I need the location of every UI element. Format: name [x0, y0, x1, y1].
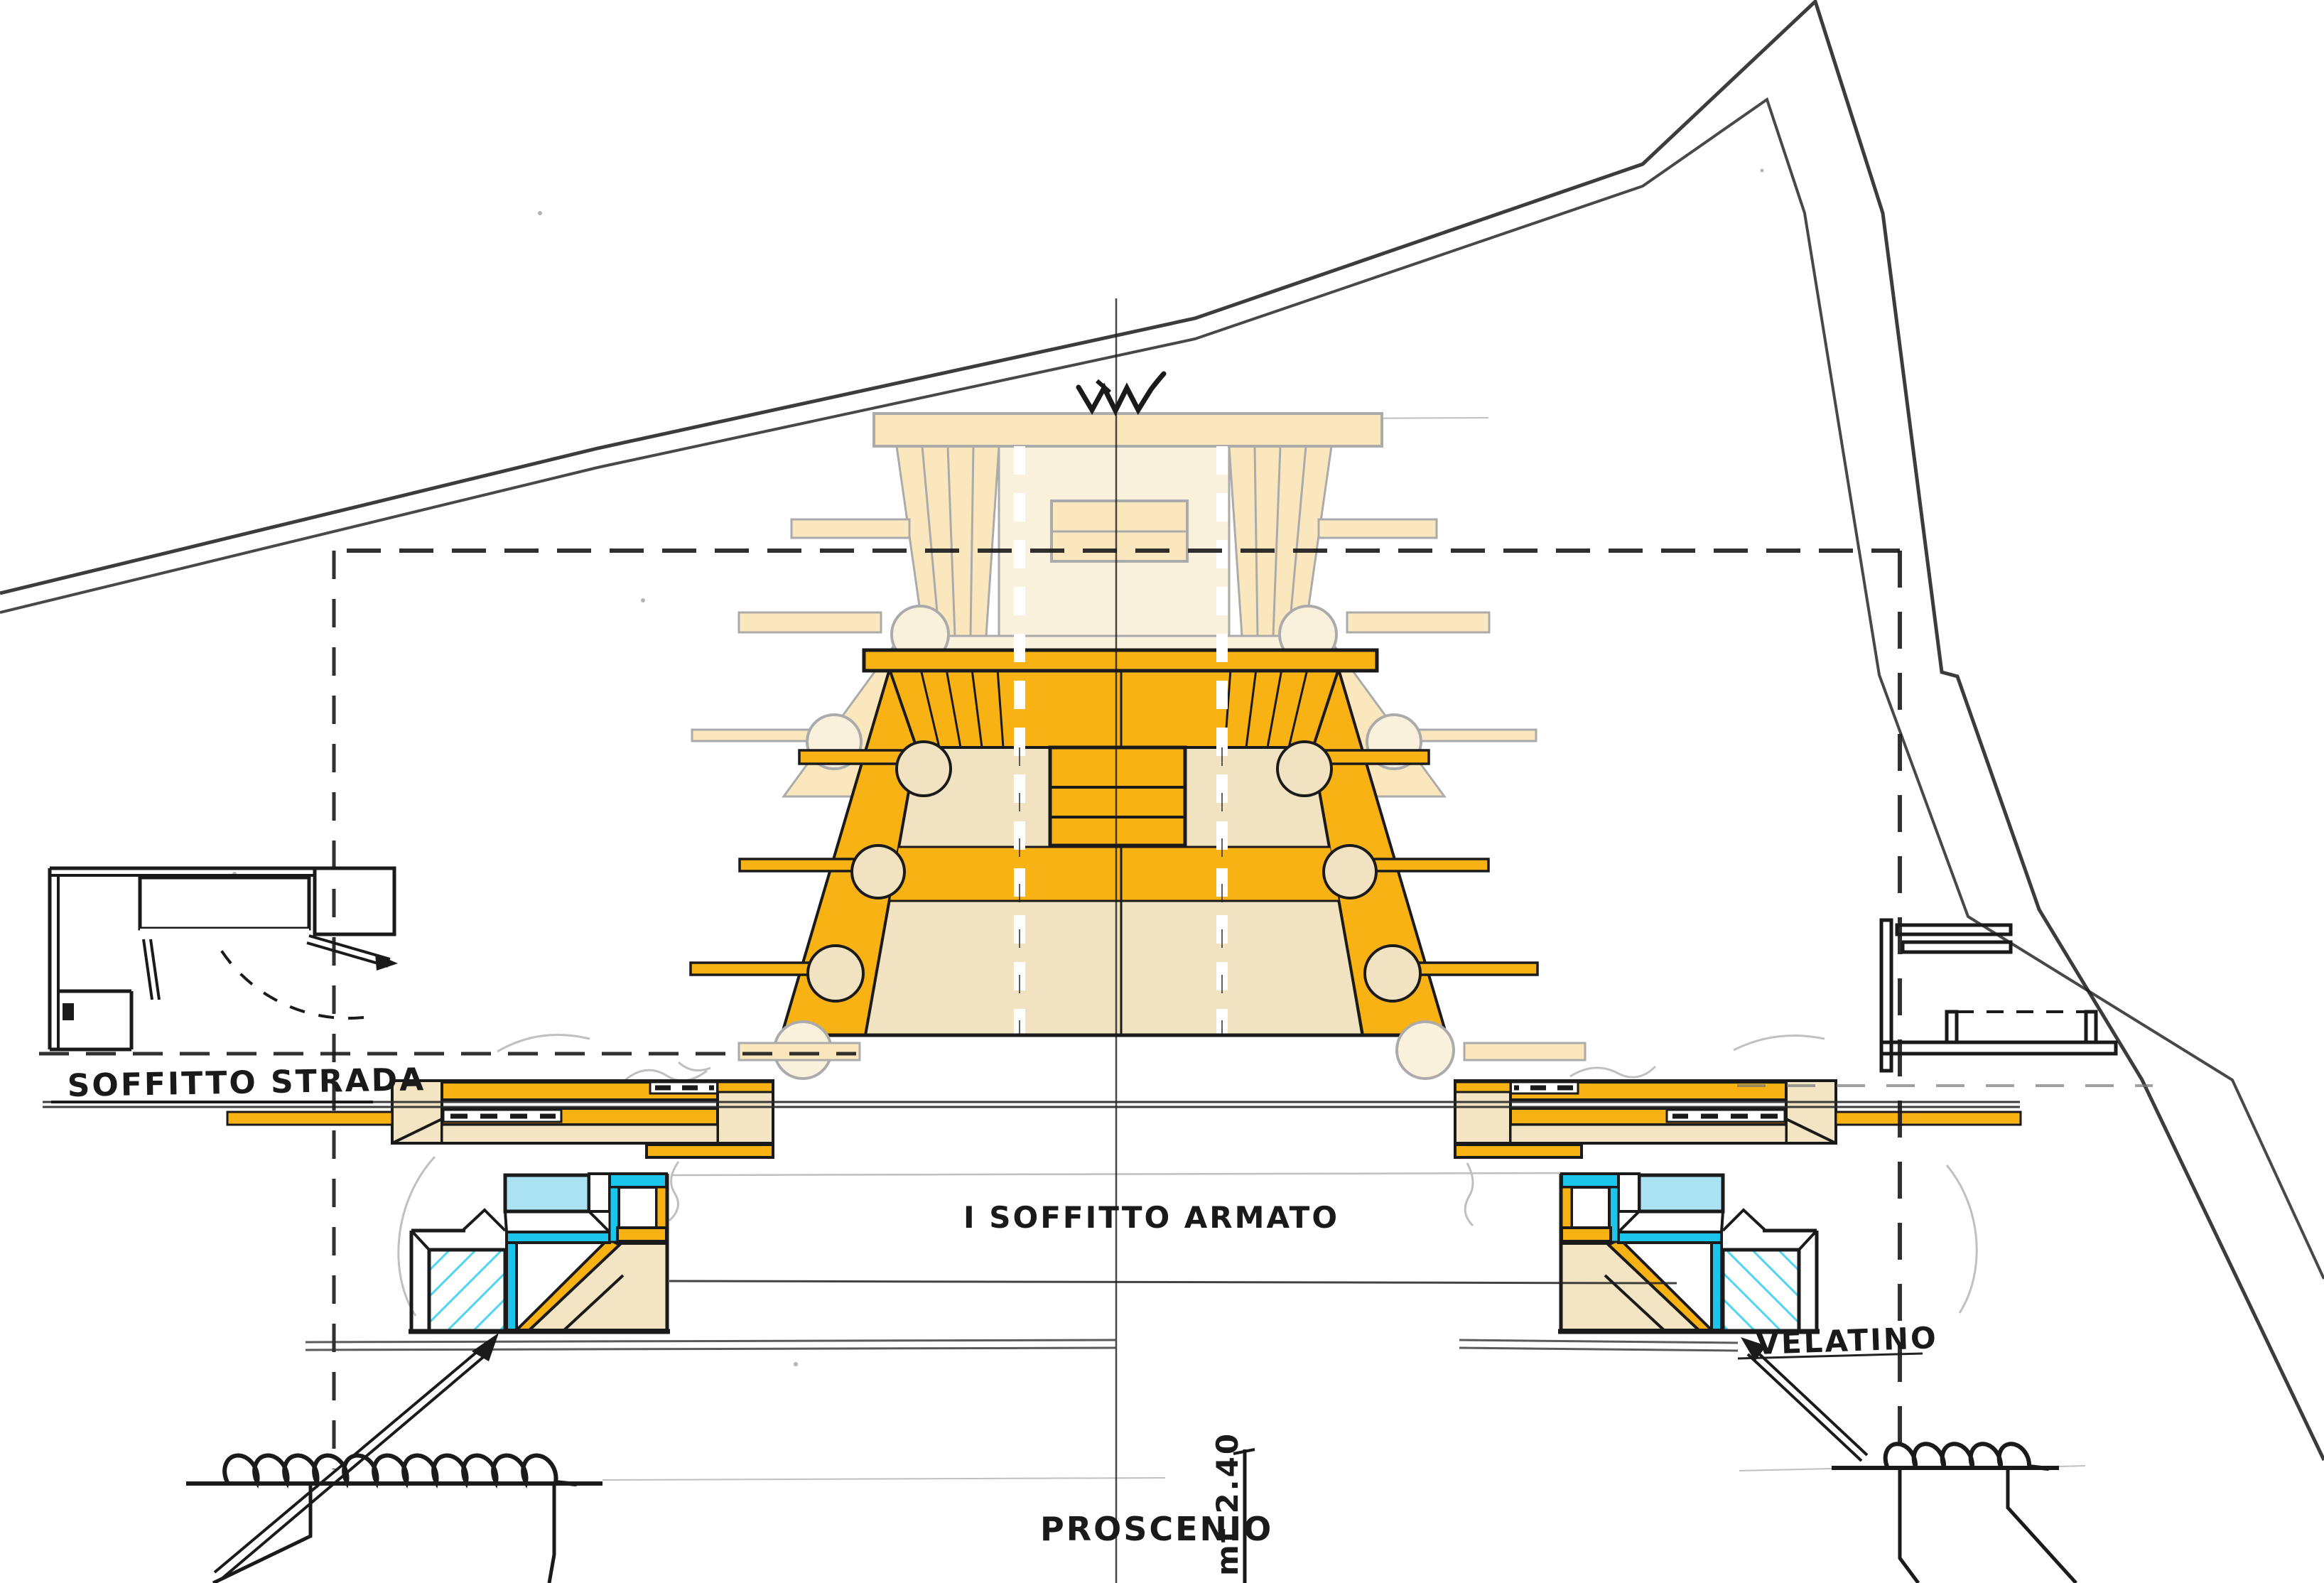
label-soffitto-strada: SOFFITTO STRADA	[67, 1061, 426, 1104]
wall-break-coil-right	[1886, 1444, 2048, 1469]
bottom-wall-right	[1741, 1337, 2076, 1583]
wall-break-coil-left	[225, 1455, 575, 1484]
beam-assembly-left	[392, 1081, 773, 1157]
beam-assembly-right	[1455, 1081, 1836, 1157]
tier-top-bar	[864, 650, 1377, 671]
soffitto-strada-bar-right	[1836, 1112, 2021, 1125]
soffitto-strada-bar-left	[227, 1112, 392, 1125]
fan-panel	[890, 669, 1339, 747]
architectural-drawing: SOFFITTO STRADA I SOFFITTO ARMATO VELATI…	[0, 0, 2324, 1583]
winch-box	[1050, 747, 1185, 845]
bracket-detail-right	[1881, 920, 2116, 1071]
spring-symbol	[1079, 374, 1164, 411]
carriage-assembly-left	[409, 1174, 670, 1331]
carriage-assembly-right	[1558, 1174, 1820, 1331]
label-dimension: mt 2.40	[1210, 1432, 1245, 1576]
plan-detail-topleft	[50, 868, 398, 1049]
label-soffitto-armato: I SOFFITTO ARMATO	[963, 1200, 1339, 1235]
bottom-wall-left	[186, 1333, 602, 1583]
label-velatino: VELATINO	[1756, 1320, 1939, 1361]
